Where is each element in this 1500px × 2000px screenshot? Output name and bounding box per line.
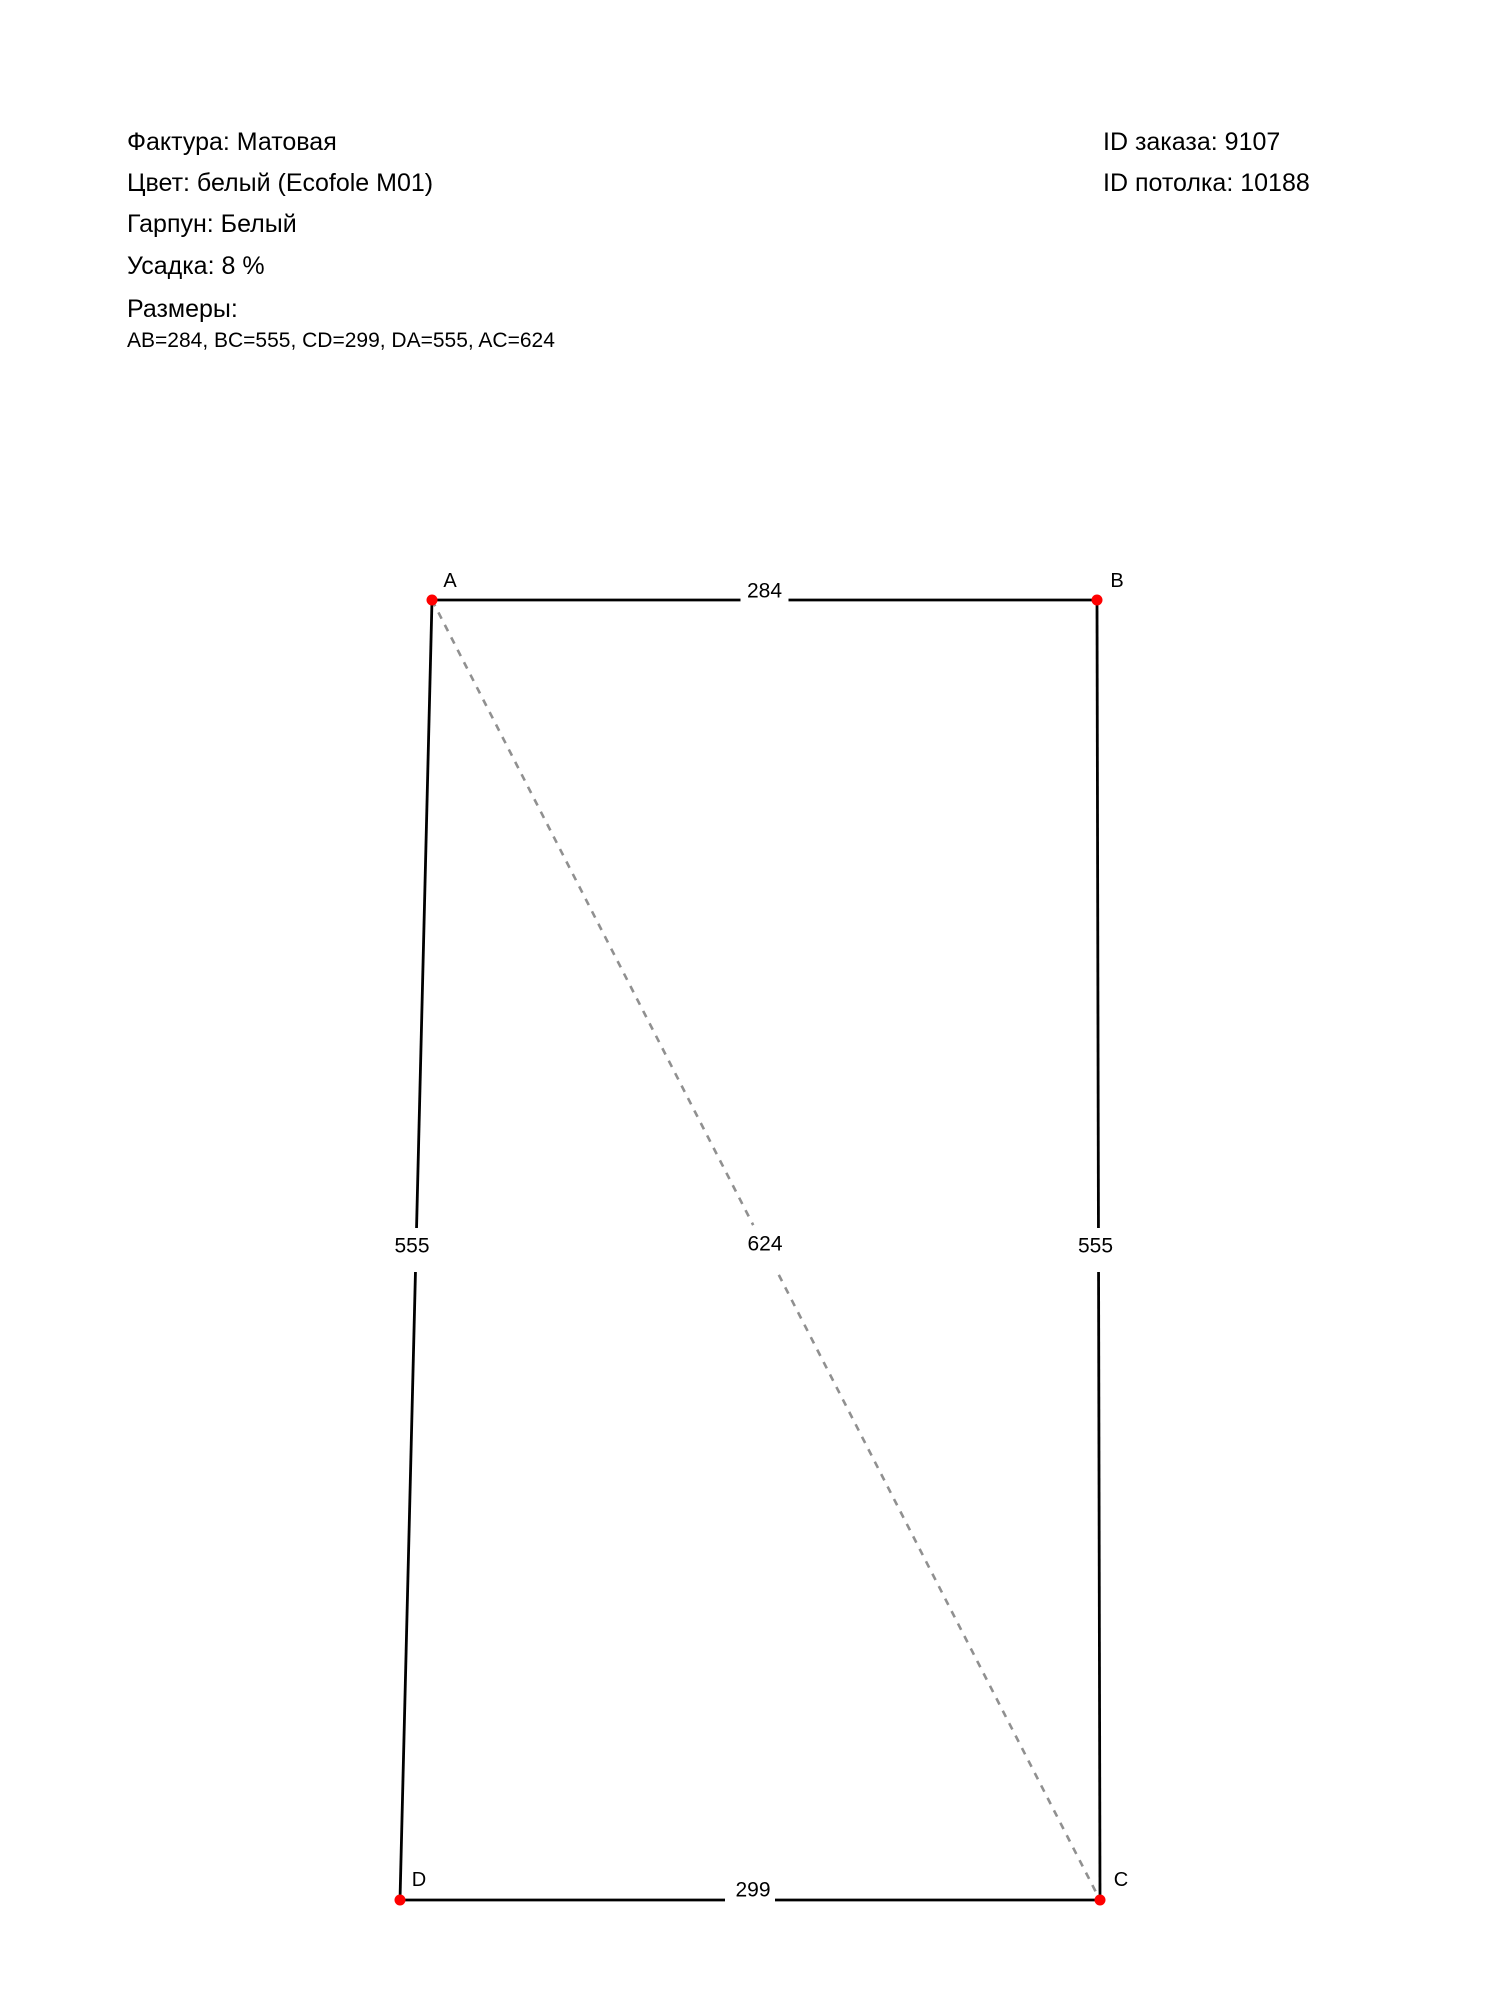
vertex-B-dot: [1092, 595, 1103, 606]
edge-BC-length-label: 555: [1078, 1235, 1113, 1258]
vertex-D-dot: [395, 1895, 406, 1906]
edge-DA-segment-2: [417, 600, 432, 1228]
diagonal-AC-length-label: 624: [747, 1233, 782, 1256]
vertex-B-label: B: [1110, 570, 1123, 592]
vertex-A-label: A: [443, 570, 457, 592]
diagonal-AC-segment-1: [432, 600, 753, 1225]
edge-DA-length-label: 555: [394, 1235, 429, 1258]
diagonal-AC-segment-2: [779, 1275, 1100, 1900]
vertex-A-dot: [427, 595, 438, 606]
vertex-C-dot: [1095, 1895, 1106, 1906]
edge-DA-segment-1: [400, 1272, 415, 1900]
vertex-C-label: C: [1114, 1869, 1128, 1891]
edge-BC-segment-2: [1099, 1272, 1100, 1900]
document-page: Фактура: Матовая Цвет: белый (Ecofole M0…: [0, 0, 1500, 2000]
edge-BC-segment-1: [1097, 600, 1098, 1228]
ceiling-outline-diagram: 284555299555624ABCD: [0, 0, 1500, 2000]
edge-AB-length-label: 284: [747, 580, 782, 603]
edge-CD-length-label: 299: [735, 1879, 770, 1902]
vertex-D-label: D: [412, 1869, 426, 1891]
